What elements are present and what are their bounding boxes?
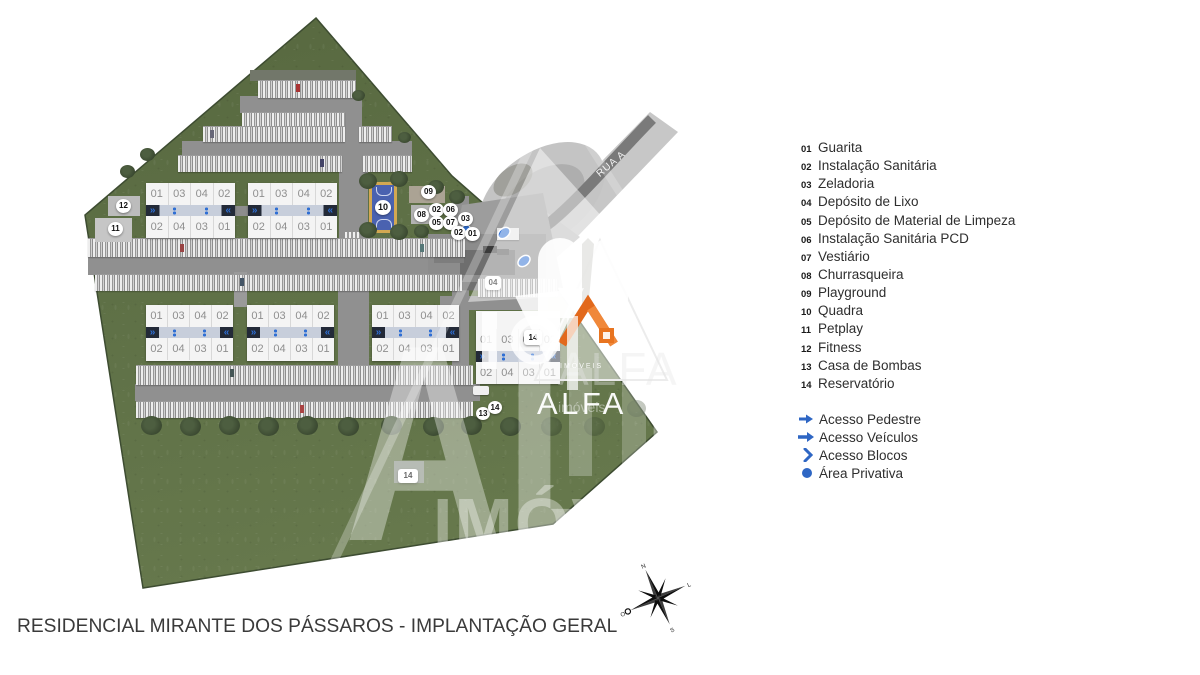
svg-text:IMÓVEIS: IMÓVEIS: [433, 484, 739, 562]
svg-text:L: L: [687, 582, 693, 589]
svg-text:IMÓVEIS: IMÓVEIS: [560, 361, 603, 370]
svg-text:S: S: [670, 627, 676, 634]
svg-text:N: N: [641, 563, 647, 570]
svg-text:imóveis: imóveis: [558, 399, 605, 415]
